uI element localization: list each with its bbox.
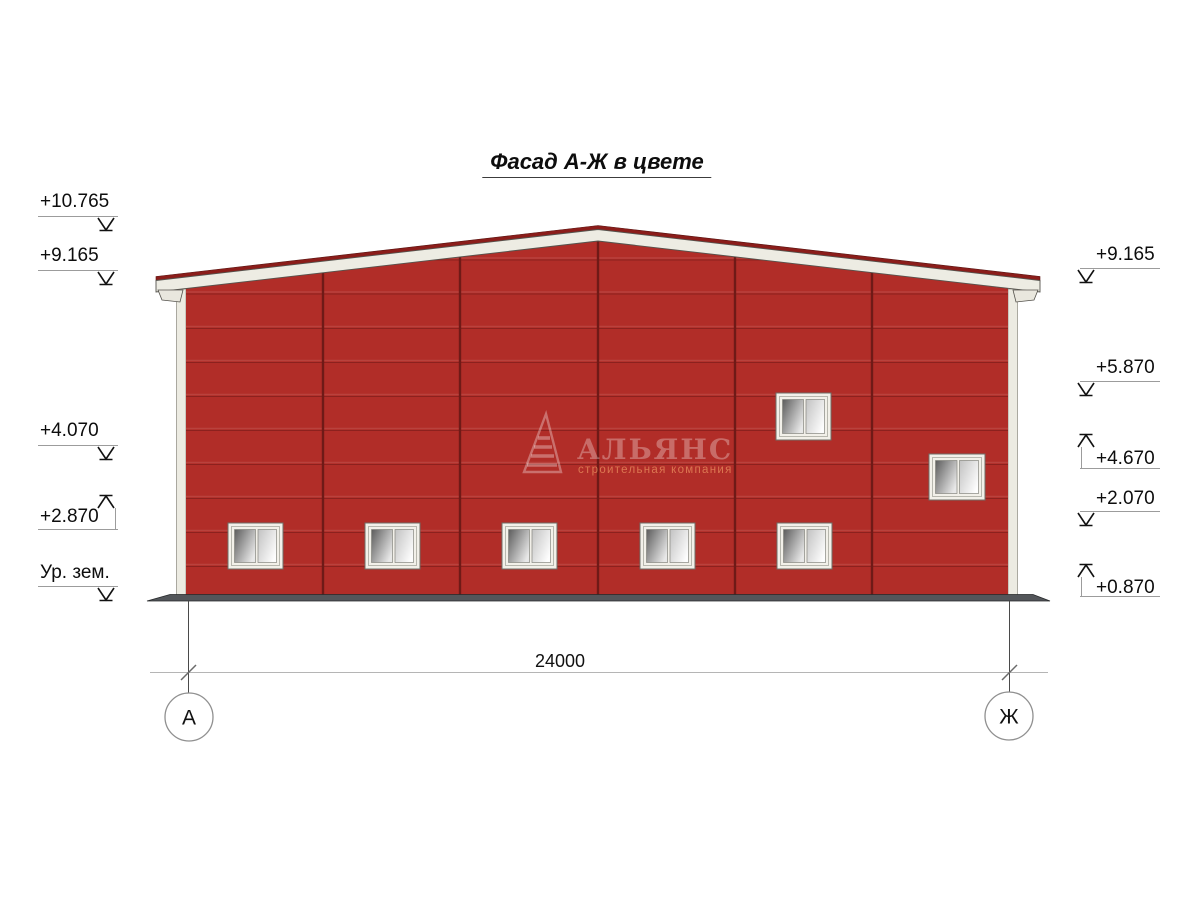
corner-trim-right — [1008, 289, 1018, 595]
window — [502, 523, 557, 569]
corner-trim-left — [177, 289, 187, 595]
elevation-arrow-down-icon — [96, 587, 116, 602]
elevation-value: +2.870 — [40, 506, 99, 528]
elevation-arrow-down-icon — [96, 271, 116, 286]
elevation-arrow-down-icon — [1076, 512, 1096, 527]
elevation-mark: +0.870 — [1076, 563, 1186, 613]
drawing-sheet: АЛЬЯНС строительная компания — [0, 0, 1200, 900]
window — [777, 523, 832, 569]
elevation-arrow-up-icon — [1076, 563, 1096, 578]
elevation-mark: +9.165 — [1076, 244, 1186, 290]
elevation-mark: +5.870 — [1076, 357, 1186, 403]
elevation-mark: +2.870 — [38, 485, 158, 535]
drawing-title: Фасад А-Ж в цвете — [482, 149, 711, 178]
elevation-mark: +10.765 — [38, 191, 158, 237]
window — [776, 393, 831, 440]
window — [228, 523, 283, 569]
elevation-mark: +4.070 — [38, 420, 158, 466]
elevation-value: Ур. зем. — [40, 562, 110, 584]
elevation-value: +4.670 — [1096, 448, 1155, 470]
elevation-arrow-down-icon — [96, 446, 116, 461]
window — [929, 454, 985, 500]
elevation-arrow-up-icon — [96, 494, 116, 509]
axis-label-a: А — [182, 707, 196, 730]
elevation-value: +5.870 — [1096, 357, 1155, 379]
axis-label-zh: Ж — [999, 706, 1019, 729]
elevation-arrow-down-icon — [1076, 269, 1096, 284]
elevation-value: +2.070 — [1096, 488, 1155, 510]
elevation-arrow-down-icon — [1076, 382, 1096, 397]
dimension-value: 24000 — [535, 651, 585, 671]
elevation-arrow-up-icon — [1076, 433, 1096, 448]
elevation-mark: Ур. зем. — [38, 562, 158, 608]
window — [365, 523, 420, 569]
facade-drawing: АЛЬЯНС строительная компания — [0, 0, 1200, 900]
roof-endcap-left — [158, 290, 183, 302]
elevation-mark: +4.670 — [1076, 433, 1186, 483]
dimension-group: 24000 А Ж — [150, 601, 1048, 741]
ground-line — [147, 595, 1050, 602]
roof-endcap-right — [1013, 290, 1038, 302]
elevation-value: +10.765 — [40, 191, 109, 213]
elevation-arrow-down-icon — [96, 217, 116, 232]
elevation-mark: +2.070 — [1076, 488, 1186, 534]
window — [640, 523, 695, 569]
elevation-mark: +9.165 — [38, 245, 158, 291]
elevation-value: +4.070 — [40, 420, 99, 442]
watermark-tagline: строительная компания — [578, 464, 733, 476]
elevation-value: +9.165 — [40, 245, 99, 267]
elevation-value: +9.165 — [1096, 244, 1155, 266]
watermark-name: АЛЬЯНС — [577, 433, 733, 466]
